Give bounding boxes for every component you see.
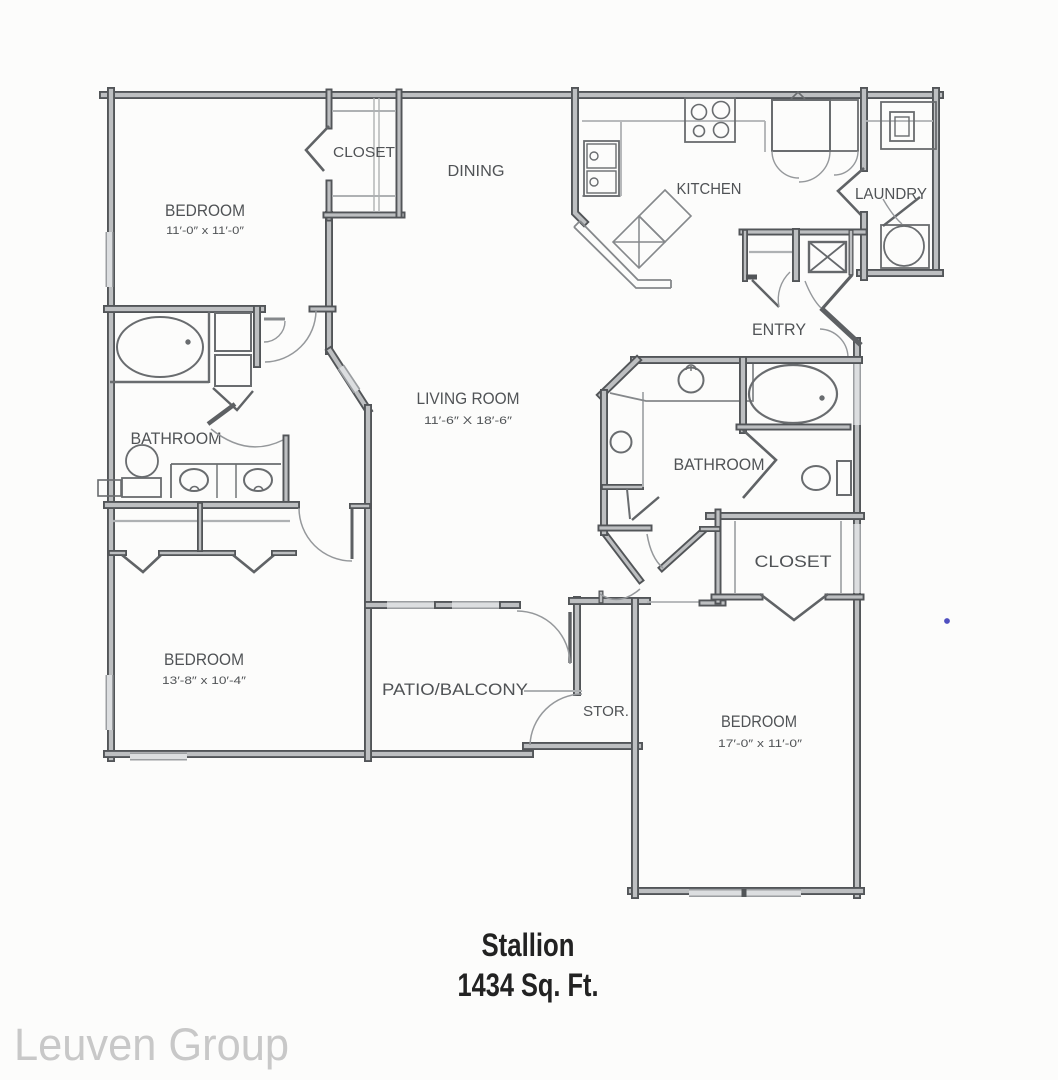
- svg-text:DINING: DINING: [448, 163, 505, 180]
- svg-text:Leuven Group: Leuven Group: [14, 1019, 289, 1070]
- svg-text:BEDROOM: BEDROOM: [164, 650, 244, 669]
- svg-text:LIVING ROOM: LIVING ROOM: [417, 390, 520, 408]
- svg-text:17′-0″ x 11′-0″: 17′-0″ x 11′-0″: [718, 738, 802, 750]
- svg-text:1434 Sq. Ft.: 1434 Sq. Ft.: [458, 967, 599, 1003]
- svg-text:CLOSET: CLOSET: [755, 553, 832, 571]
- svg-text:STOR.: STOR.: [583, 703, 629, 720]
- svg-text:ENTRY: ENTRY: [752, 320, 806, 339]
- svg-text:BEDROOM: BEDROOM: [721, 712, 797, 731]
- svg-text:CLOSET: CLOSET: [333, 144, 395, 161]
- svg-text:PATIO/BALCONY: PATIO/BALCONY: [382, 681, 528, 699]
- svg-text:BATHROOM: BATHROOM: [674, 456, 765, 474]
- svg-text:Stallion: Stallion: [482, 927, 575, 963]
- svg-text:11′-6″ X 18′-6″: 11′-6″ X 18′-6″: [424, 415, 512, 427]
- svg-text:11′-0″ x 11′-0″: 11′-0″ x 11′-0″: [166, 225, 244, 237]
- svg-text:13′-8″ x 10′-4″: 13′-8″ x 10′-4″: [162, 675, 246, 687]
- svg-text:KITCHEN: KITCHEN: [677, 181, 742, 198]
- svg-text:BEDROOM: BEDROOM: [165, 201, 245, 220]
